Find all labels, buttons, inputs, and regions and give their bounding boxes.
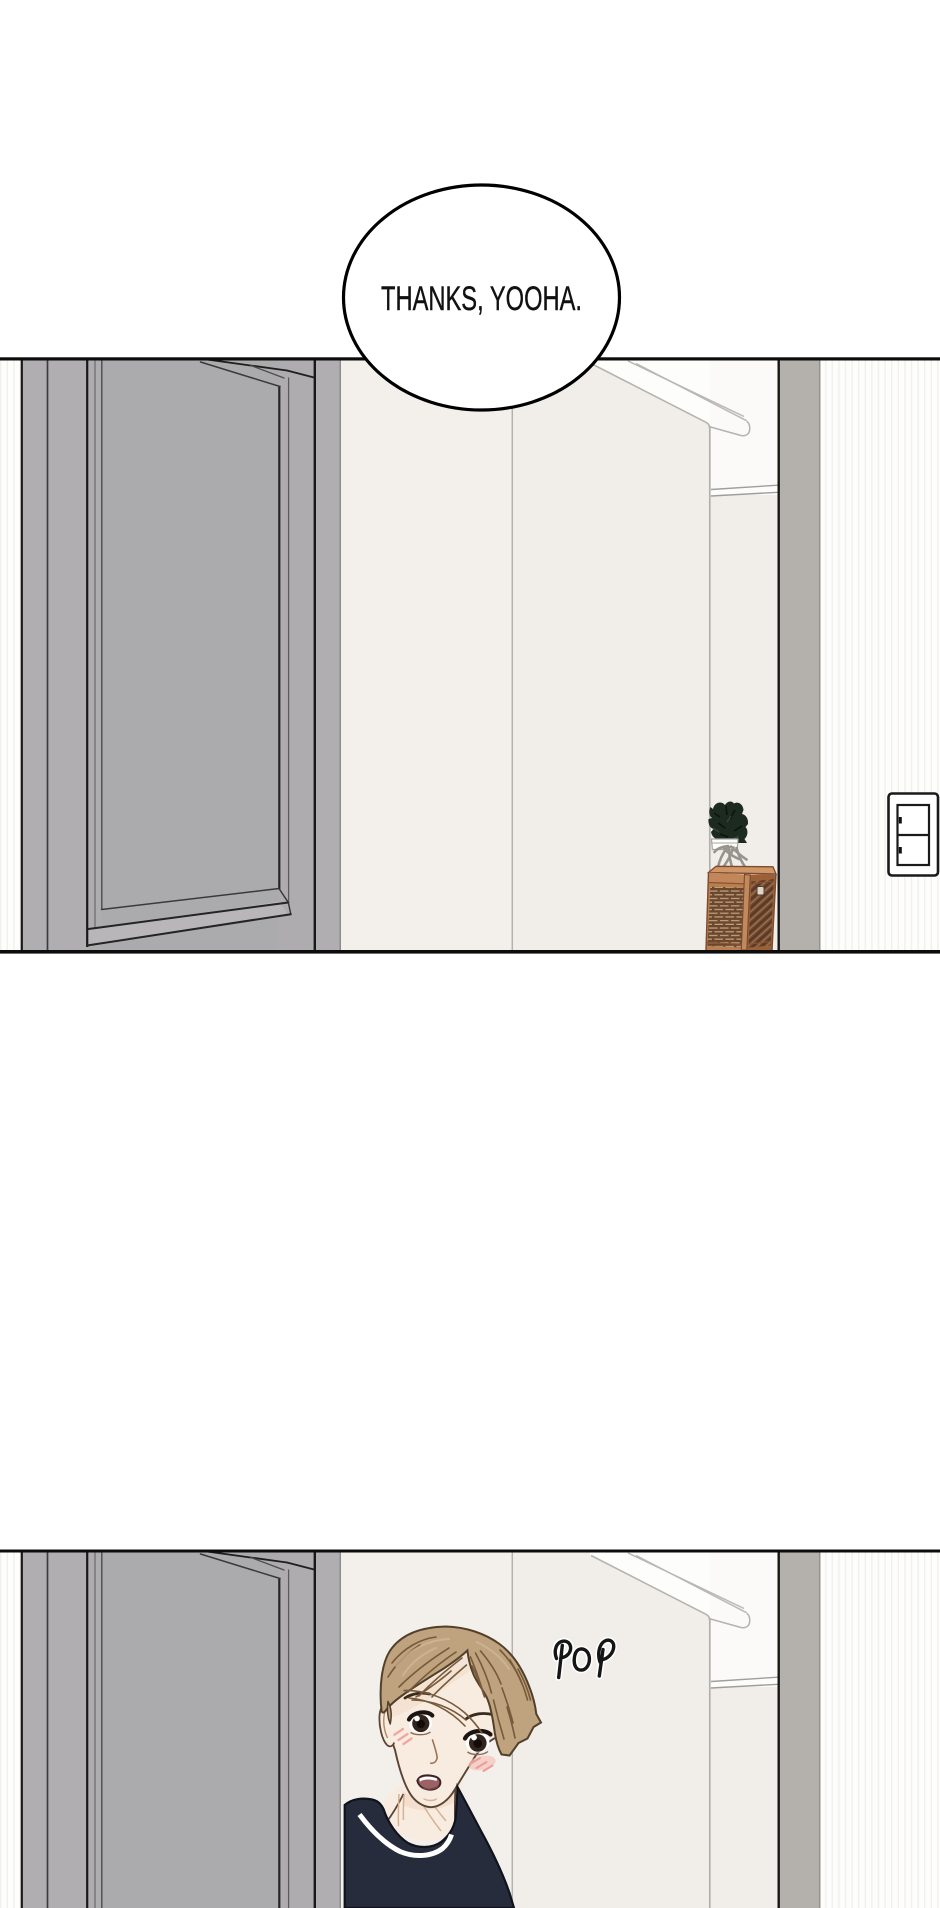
- svg-text:THANKS, YOOHA.: THANKS, YOOHA.: [381, 280, 582, 318]
